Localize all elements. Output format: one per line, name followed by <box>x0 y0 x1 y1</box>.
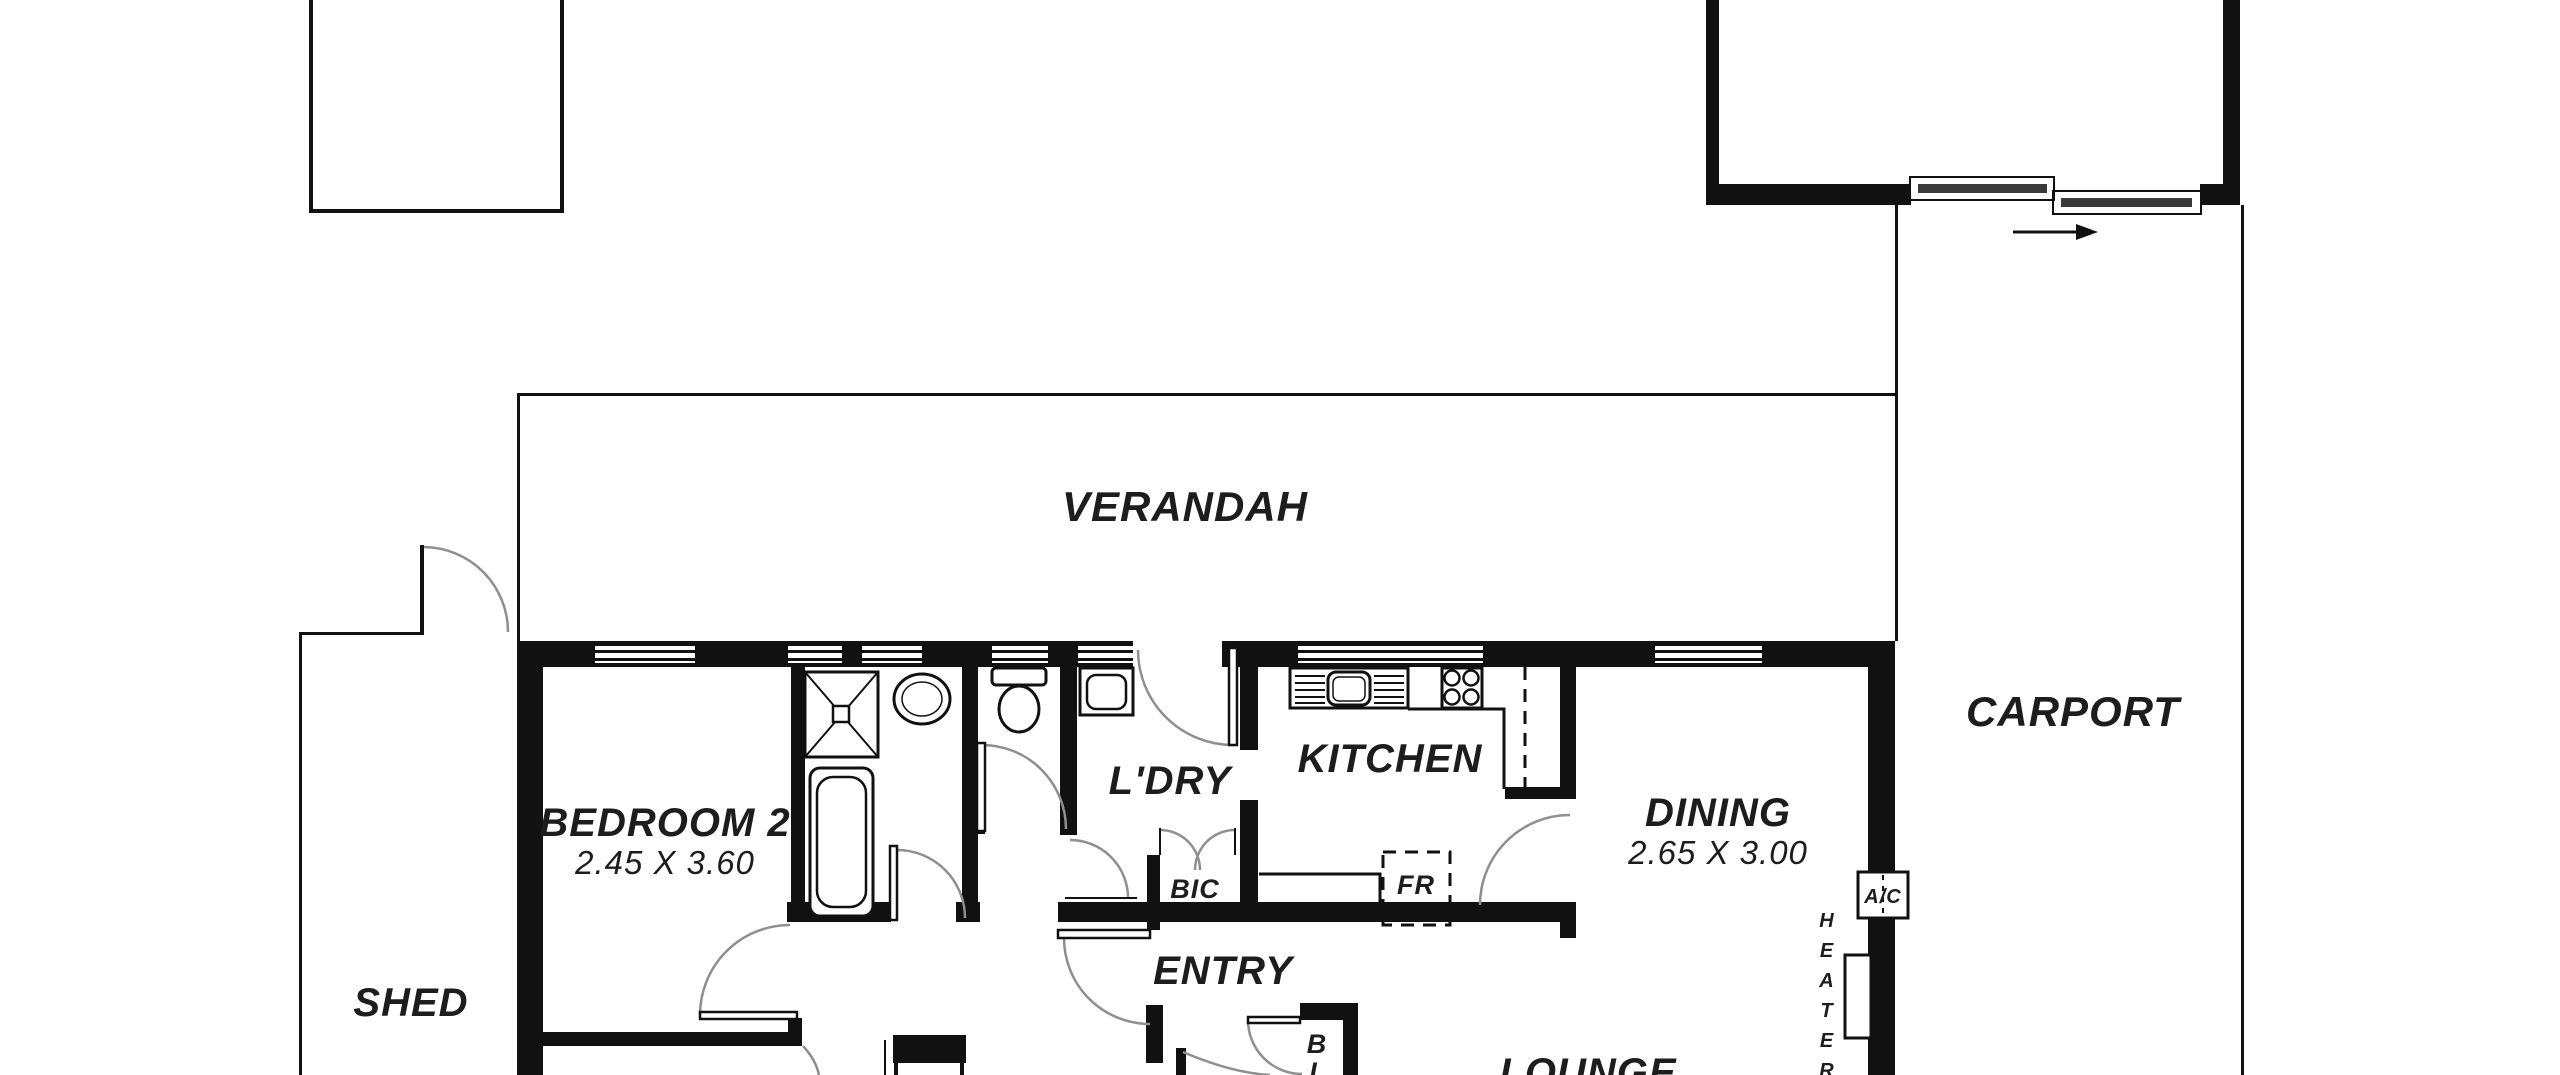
verandah-left-line <box>517 393 520 641</box>
bic-label: BIC <box>1170 874 1220 904</box>
window-line <box>1298 650 1483 653</box>
west-wall <box>517 641 543 1075</box>
shed-door-arc <box>424 547 508 632</box>
basin-inner <box>902 682 942 716</box>
laundry-ext-door-leaf <box>1229 648 1237 745</box>
entry-label: ENTRY <box>1153 949 1295 993</box>
heater-letter: A <box>1818 970 1834 992</box>
carport: CARPORT <box>1895 205 2244 1075</box>
garage-right-wall <box>2223 0 2240 205</box>
lower-bench-outline <box>1259 874 1380 906</box>
bedroom2-door-jamb <box>788 1018 802 1046</box>
bic-bifold-door-arcs <box>1160 830 1235 870</box>
kitchen-dining-wall <box>1560 664 1576 798</box>
shed-label: SHED <box>353 981 468 1025</box>
heater-letter: T <box>1820 1000 1834 1022</box>
window-shower <box>788 646 842 663</box>
heater-letter: E <box>1820 940 1834 962</box>
window-kitchen <box>1298 646 1483 663</box>
shed: SHED <box>299 545 508 1075</box>
window-line <box>788 658 842 661</box>
laundry-trough-inner <box>1087 675 1126 709</box>
kitchen-label: KITCHEN <box>1298 737 1483 781</box>
linen-closet-right-wall <box>1343 1003 1358 1075</box>
window-line <box>1298 658 1483 661</box>
heater-letter: R <box>1819 1060 1834 1075</box>
sliding-door-glass-1 <box>1918 184 2047 193</box>
verandah-label: VERANDAH <box>1062 483 1309 530</box>
shed-top-line <box>299 632 423 635</box>
window-line <box>595 658 695 661</box>
robe-side-line-left <box>894 1063 898 1075</box>
bathroom-toilet-wall <box>962 667 978 920</box>
floor-plan-drawing: CARPORT VERANDAH SHED <box>0 0 2560 1075</box>
ac-label: A/C <box>1863 886 1901 908</box>
window-line <box>595 650 695 653</box>
laundry-hall-door-arc <box>1070 840 1128 898</box>
verandah-top-line <box>517 393 1896 396</box>
heater-unit <box>1845 955 1871 1038</box>
linen-closet-letter-l: L <box>1309 1057 1327 1075</box>
hall-wall-stub <box>956 902 980 922</box>
robe-wall-bar <box>893 1035 966 1063</box>
bedroom1-door-arc <box>803 1046 819 1075</box>
bic-back-wall <box>1158 902 1240 922</box>
window-line <box>788 650 842 653</box>
window-toilet <box>992 646 1048 663</box>
bic-left-jamb <box>1147 855 1160 930</box>
kitchen-fixtures: FR <box>1259 667 1576 925</box>
laundry-south-wall <box>1058 902 1158 922</box>
entry-hall-door-arc <box>1064 938 1150 1024</box>
window-line <box>862 650 922 653</box>
window-dining <box>1655 646 1762 663</box>
bathroom-door-leaf <box>890 846 897 920</box>
window-line <box>1655 650 1762 653</box>
window-line <box>1078 650 1133 653</box>
dining-wall-end-block <box>1560 902 1576 938</box>
window-bathroom <box>862 646 922 663</box>
window-line <box>992 658 1048 661</box>
entry-west-jamb <box>1146 1005 1163 1063</box>
front-door-arc-2 <box>1183 1052 1270 1075</box>
carport-left-line <box>1895 205 1898 641</box>
linen-closet-letter-b: B <box>1307 1029 1328 1059</box>
bedroom2-size: 2.45 X 3.60 <box>574 844 755 881</box>
lounge-label: LOUNGE <box>1499 1051 1676 1075</box>
garage-structure <box>1706 0 2240 240</box>
toilet-cistern <box>992 668 1046 685</box>
kitchen-dining-door-arc <box>1480 815 1570 905</box>
toilet-bowl <box>999 686 1039 732</box>
toilet-door-leaf <box>977 743 985 831</box>
kitchen-south-wall <box>1258 902 1576 922</box>
sliding-door-glass-2 <box>2061 198 2192 207</box>
heater-letter: E <box>1820 1030 1834 1052</box>
carport-right-line <box>2241 205 2244 1075</box>
shed-door-leaf <box>420 545 424 635</box>
outbuilding-outline <box>311 0 562 211</box>
stove-burner <box>1464 671 1479 686</box>
heater-letter: H <box>1819 910 1834 932</box>
laundry-ext-door-opening <box>1133 640 1222 668</box>
slide-direction-arrow-head <box>2076 224 2098 240</box>
fridge-label: FR <box>1397 870 1435 900</box>
window-line <box>1078 658 1133 661</box>
verandah: VERANDAH <box>517 393 1896 641</box>
window-line <box>1655 658 1762 661</box>
carport-label: CARPORT <box>1966 688 2182 735</box>
pantry-bottom-wall <box>1505 787 1576 799</box>
window-line <box>992 650 1048 653</box>
bedroom2-bathroom-wall <box>791 667 805 903</box>
laundry-label: L'DRY <box>1109 759 1234 803</box>
garage-bottom-wall-left <box>1706 184 1911 205</box>
stove-burner <box>1445 690 1460 705</box>
sink-inner <box>1333 677 1365 701</box>
window-line <box>862 658 922 661</box>
garage-left-wall <box>1706 0 1719 205</box>
window-bedroom2 <box>595 646 695 663</box>
toilet-door-arc <box>982 745 1066 829</box>
floor-plan-page: CARPORT VERANDAH SHED <box>0 0 2560 1075</box>
shower-drain <box>833 706 849 722</box>
robe-side-line-right <box>960 1063 964 1075</box>
dining-label: DINING <box>1645 791 1791 835</box>
bedroom2-south-wall <box>543 1032 802 1046</box>
kitchen-wall-upper <box>1240 667 1258 750</box>
stove-burner <box>1445 671 1460 686</box>
front-door-leaf-1 <box>1248 1017 1300 1023</box>
dining-size: 2.65 X 3.00 <box>1627 834 1808 871</box>
bathtub-inner <box>817 777 866 907</box>
bathroom-door-arc <box>897 850 965 918</box>
bedroom2-door-arc <box>700 925 790 1015</box>
window-laundry <box>1078 646 1133 663</box>
outbuilding-top-left <box>311 0 562 211</box>
front-door-arc-1 <box>1248 1020 1302 1074</box>
shed-left-line <box>299 632 302 1075</box>
hall-thin-line <box>884 1040 886 1075</box>
stove-burner <box>1464 690 1479 705</box>
entry-hall-door-leaf <box>1058 930 1150 938</box>
bedroom2-door-leaf <box>700 1012 797 1019</box>
kitchen-wall-lower <box>1240 800 1258 922</box>
bedroom2-label: BEDROOM 2 <box>539 801 790 845</box>
